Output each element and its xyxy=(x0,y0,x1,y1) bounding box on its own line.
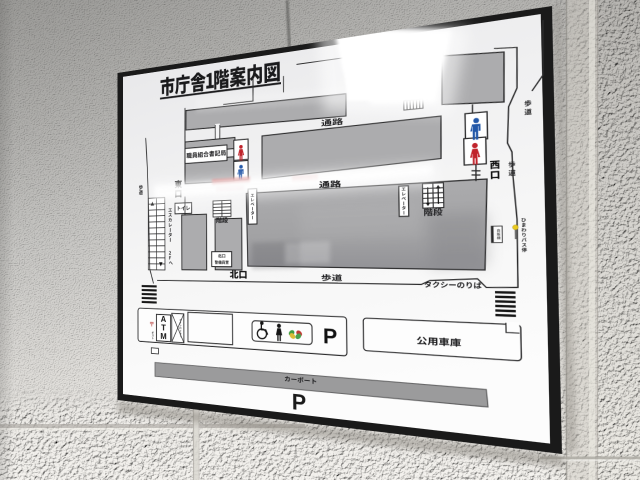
svg-text:P: P xyxy=(323,326,338,350)
svg-text:M: M xyxy=(160,331,166,342)
svg-text:P: P xyxy=(292,390,307,417)
